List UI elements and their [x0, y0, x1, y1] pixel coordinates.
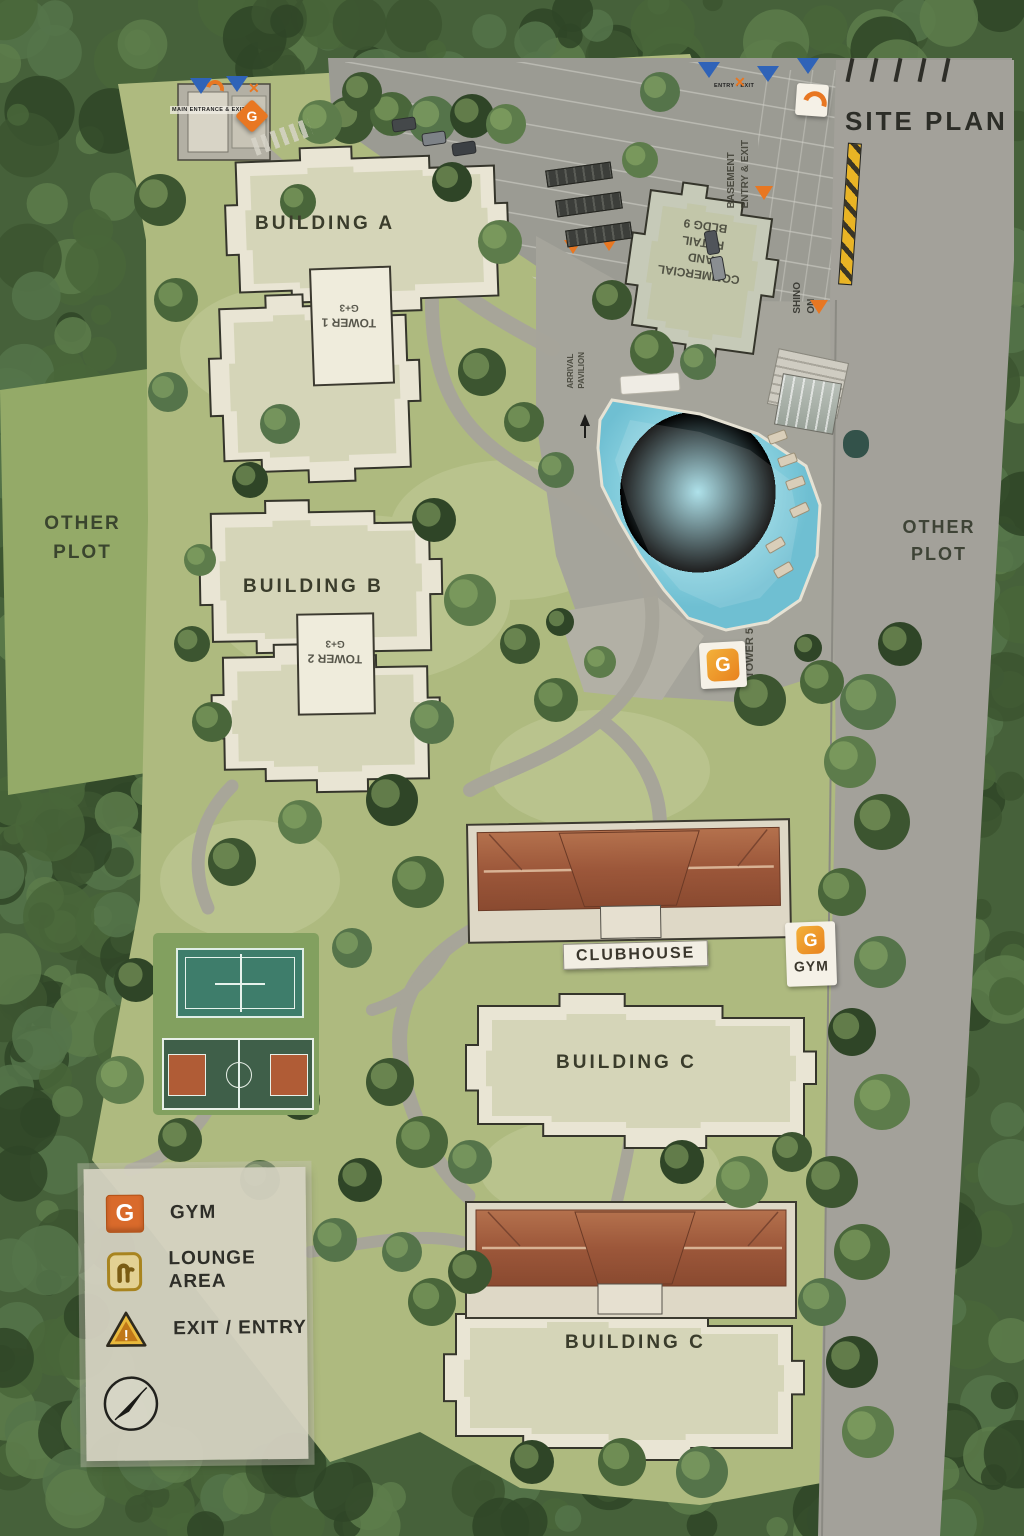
tree-highlight: [596, 284, 618, 306]
other-plot-left-field: [0, 368, 165, 795]
closed-gate-x-icon: ✕: [734, 74, 746, 91]
forest-tree: [12, 1225, 82, 1295]
forest-tree: [990, 1102, 1024, 1136]
clubhouse-building: [467, 819, 791, 943]
tree-highlight: [776, 1136, 798, 1158]
gate-brand-card: [795, 83, 829, 117]
gym-g-icon: G: [706, 648, 740, 682]
tree-highlight: [681, 1451, 710, 1480]
tree-highlight: [847, 1411, 876, 1440]
gym-badge-label: GYM: [786, 957, 837, 975]
tree-highlight: [721, 1161, 750, 1190]
forest-tree: [472, 14, 506, 48]
tennis-court: [176, 948, 304, 1018]
entry-marker-blue-icon: [797, 58, 819, 74]
forest-tree: [52, 1086, 83, 1117]
tree-highlight: [634, 334, 658, 358]
tree-highlight: [797, 637, 812, 652]
tree-highlight: [860, 800, 891, 831]
tree-highlight: [454, 98, 478, 122]
exit-entry-marker-icon: [810, 300, 828, 314]
forest-tree: [60, 973, 99, 1012]
tree-highlight: [346, 76, 368, 98]
tree-highlight: [840, 1230, 871, 1261]
forest-tree: [991, 1382, 1018, 1409]
exit-entry-marker-icon: [755, 186, 773, 200]
tree-highlight: [401, 1121, 430, 1150]
tree-highlight: [284, 188, 304, 208]
other-plot-right: OTHER PLOT: [894, 514, 984, 568]
brand-swirl-icon: [799, 87, 831, 119]
forest-tree: [426, 40, 446, 60]
forest-tree: [12, 271, 61, 320]
building-c-bottom-label: BUILDING C: [565, 1332, 706, 1354]
tree-highlight: [482, 224, 506, 248]
tree-highlight: [803, 1283, 829, 1309]
legend-label: LOUNGE AREA: [168, 1247, 263, 1294]
legend-label: EXIT / ENTRY: [173, 1316, 307, 1340]
tree-highlight: [178, 630, 198, 650]
basketball-key-right: [270, 1054, 308, 1096]
forest-tree: [125, 30, 151, 56]
feature-marker: [578, 414, 592, 440]
building-c-mid-label: BUILDING C: [556, 1052, 697, 1074]
tree-highlight: [414, 704, 438, 728]
tree-highlight: [282, 804, 306, 828]
tree-highlight: [162, 1122, 186, 1146]
tree-highlight: [549, 611, 564, 626]
tree-highlight: [833, 1013, 859, 1039]
compass-icon: [102, 1374, 161, 1433]
building-b-label: BUILDING B: [243, 576, 384, 598]
basement-entry-label: ENTRY & EXIT BASEMENT: [726, 140, 751, 208]
gym-icon: G: [106, 1195, 144, 1233]
entry-marker-blue-icon: [698, 62, 720, 78]
tree-highlight: [397, 861, 426, 890]
tree-highlight: [187, 547, 205, 565]
forest-tree: [54, 317, 91, 354]
tree-highlight: [152, 376, 174, 398]
forest-tree: [27, 183, 68, 224]
tree-highlight: [490, 108, 512, 130]
page-title: SITE PLAN: [845, 106, 1008, 137]
tower1-label: TOWER 1 G+3: [316, 299, 383, 331]
tree-highlight: [317, 1222, 341, 1246]
tree-highlight: [139, 179, 168, 208]
entry-marker-blue-icon: [757, 66, 779, 82]
forest-tree: [23, 881, 95, 953]
legend-panel: G GYM LOUNGE AREA ! EXIT / ENTRY: [83, 1167, 308, 1461]
forest-tree: [91, 305, 111, 325]
tree-highlight: [196, 706, 218, 728]
tree-highlight: [514, 1444, 538, 1468]
tree-highlight: [213, 843, 239, 869]
gym-g-icon: G: [240, 104, 264, 128]
forest-tree: [996, 772, 1024, 801]
legend-row-exit-entry: ! EXIT / ENTRY: [105, 1309, 307, 1349]
tree-highlight: [542, 456, 562, 476]
tree-highlight: [118, 962, 142, 986]
tree-highlight: [811, 1161, 840, 1190]
tree-highlight: [587, 649, 605, 667]
forest-tree: [27, 25, 82, 80]
tree-highlight: [463, 353, 489, 379]
tree-highlight: [342, 1162, 366, 1186]
basketball-center-circle: [226, 1062, 252, 1088]
mid-gym-badge: G: [699, 641, 747, 689]
other-plot-left: OTHER PLOT: [30, 510, 135, 567]
basketball-court: [162, 1038, 314, 1110]
tree-highlight: [101, 1061, 127, 1087]
tree-highlight: [452, 1144, 476, 1168]
gym-g-icon: G: [796, 926, 825, 955]
clubhouse-banner: CLUBHOUSE: [563, 940, 709, 970]
legend-label: GYM: [170, 1201, 217, 1224]
closed-gate-x-icon: ✕: [248, 80, 260, 97]
tree-highlight: [831, 1341, 860, 1370]
tree-highlight: [508, 406, 530, 428]
tree-highlight: [413, 101, 439, 127]
forest-tree: [95, 792, 138, 835]
tree-highlight: [882, 626, 906, 650]
tower2-label: TOWER 2 G+3: [302, 635, 369, 667]
tree-highlight: [504, 628, 526, 650]
tree-highlight: [413, 1283, 439, 1309]
tree-highlight: [236, 466, 256, 486]
forest-tree: [376, 1482, 406, 1512]
forest-tree: [270, 4, 303, 37]
tree-highlight: [264, 408, 286, 430]
tree-highlight: [158, 282, 182, 306]
tree-highlight: [538, 682, 562, 706]
tree-highlight: [436, 166, 458, 188]
gate-label-left: MAIN ENTRANCE & EXIT: [170, 106, 247, 114]
forest-tree: [125, 1495, 153, 1523]
tree-highlight: [846, 680, 877, 711]
site-plan-map: SITE PLAN OTHER PLOT OTHER PLOT BUILDING…: [0, 0, 1024, 1536]
tree-highlight: [336, 932, 358, 954]
legend-row-gym: G GYM: [106, 1194, 217, 1233]
tennis-service-line: [215, 983, 265, 985]
tree-highlight: [449, 579, 478, 608]
building-a-label: BUILDING A: [255, 213, 395, 235]
glass-pergola: [774, 373, 842, 435]
gate-gym-badge: G: [235, 99, 269, 133]
legend-row-lounge: LOUNGE AREA: [106, 1247, 263, 1294]
tree-highlight: [603, 1443, 629, 1469]
svg-text:!: !: [124, 1328, 129, 1344]
tree-highlight: [371, 779, 400, 808]
forest-tree: [555, 1505, 581, 1531]
tree-highlight: [823, 873, 849, 899]
tree-highlight: [371, 1063, 397, 1089]
entry-marker-blue-icon: [226, 76, 248, 92]
clubhouse-gym-badge: G GYM: [785, 921, 837, 987]
tree-highlight: [684, 348, 704, 368]
tree-highlight: [644, 76, 666, 98]
tree-highlight: [664, 1144, 688, 1168]
tree-highlight: [416, 502, 440, 526]
tree-highlight: [860, 1080, 891, 1111]
tree-highlight: [452, 1254, 476, 1278]
lounge-icon: [106, 1251, 142, 1291]
tree-highlight: [626, 146, 646, 166]
arrival-pavilion-label: PAVILION ARRIVAL: [566, 352, 586, 389]
bottom-clubhouse-building: [466, 1202, 796, 1318]
tree-highlight: [804, 664, 828, 688]
forest-tree: [7, 104, 29, 126]
exit-entry-icon: !: [105, 1311, 147, 1349]
garden-pond: [843, 430, 869, 458]
forest-tree: [73, 209, 114, 250]
forest-tree: [981, 1464, 1007, 1490]
tree-highlight: [829, 741, 858, 770]
tree-highlight: [386, 1236, 408, 1258]
forest-tree: [12, 1006, 72, 1066]
basketball-key-left: [168, 1054, 206, 1096]
tree-highlight: [859, 941, 888, 970]
forest-tree: [94, 892, 140, 938]
